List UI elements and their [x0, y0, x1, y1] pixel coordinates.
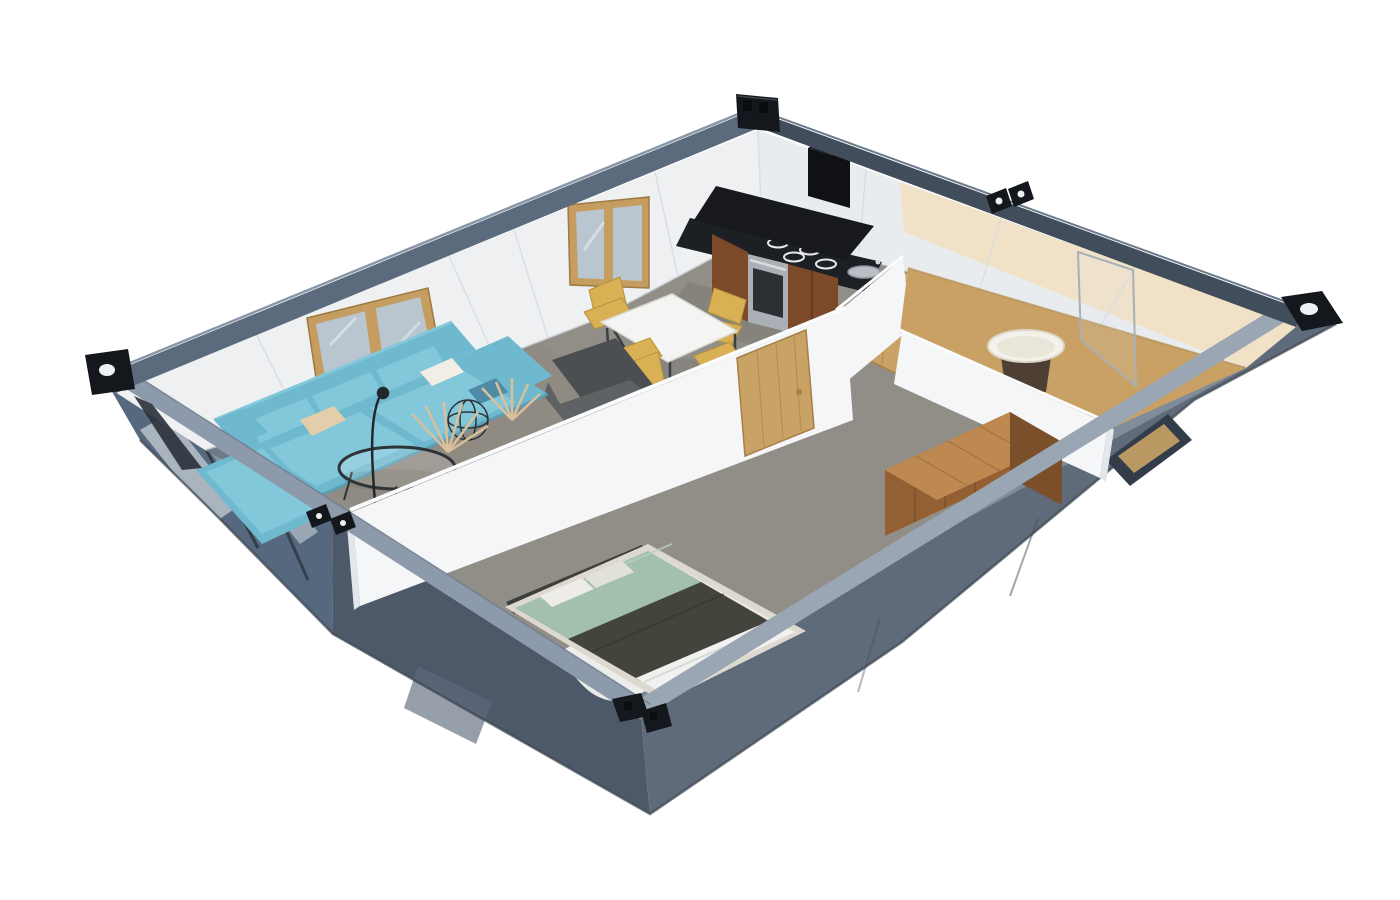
door-knob — [796, 389, 802, 395]
casting-hole — [650, 712, 657, 720]
faucet — [876, 260, 881, 265]
casting-hole — [99, 364, 115, 376]
window-right — [568, 197, 649, 288]
connector-hole — [996, 198, 1003, 205]
casting-hole — [759, 102, 768, 113]
oven-glass — [753, 268, 783, 318]
connector-hole — [340, 520, 346, 526]
casting-hole — [624, 702, 632, 710]
connector-hole — [316, 513, 322, 519]
sink — [848, 266, 880, 278]
wash-basin-inner — [997, 336, 1055, 358]
connector-hole — [1018, 191, 1025, 198]
casting-hole — [743, 100, 752, 111]
casting-hole — [1300, 303, 1318, 315]
render-canvas — [0, 0, 1400, 900]
container-house-render — [0, 0, 1400, 900]
window-mullion — [604, 207, 613, 283]
